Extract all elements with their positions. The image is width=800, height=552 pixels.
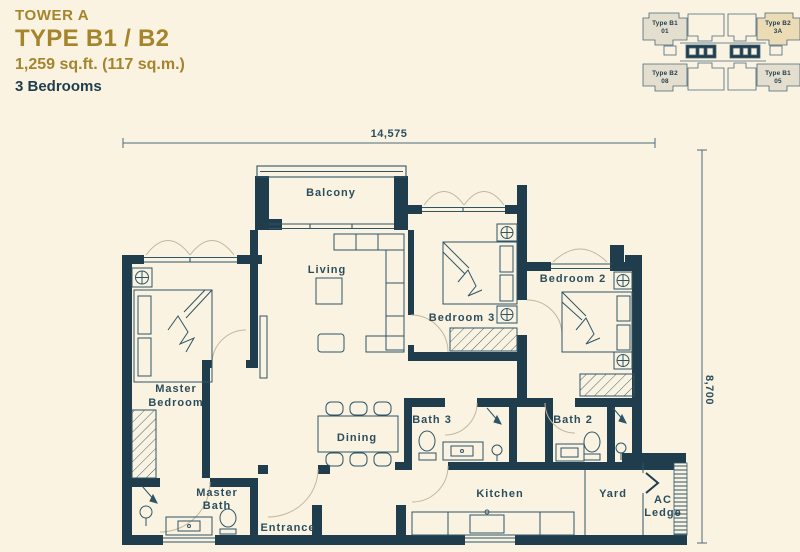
room-label-living: Living <box>308 264 346 276</box>
kitchen-door <box>412 466 448 502</box>
key-label-tr-1: Type B2 <box>765 20 791 27</box>
key-unit-bottom-mid-2 <box>728 63 756 90</box>
master-bedroom-door <box>212 330 246 364</box>
room-label-bath3: Bath 3 <box>412 414 452 426</box>
master-bed <box>134 290 212 382</box>
kitchen-counter <box>412 510 574 535</box>
windows <box>144 166 612 269</box>
coffee-table <box>316 278 342 304</box>
key-label-tr-2: 3A <box>774 28 783 35</box>
bedroom3-wardrobe <box>450 328 517 351</box>
room-label-master-bath-2: Bath <box>203 500 231 512</box>
armchair <box>318 334 344 352</box>
room-label-bedroom2: Bedroom 2 <box>540 273 606 285</box>
room-label-kitchen: Kitchen <box>476 488 523 500</box>
floor-plan-drawing: 14,575 8,700 Balcony Living Master Bedro… <box>0 0 800 552</box>
master-wardrobe <box>132 410 156 478</box>
key-plan: Type B1 01 Type B2 3A Type B2 08 Type B1… <box>643 13 800 91</box>
key-label-bl-2: 08 <box>661 78 669 85</box>
tv-console <box>260 316 267 378</box>
room-label-balcony: Balcony <box>306 187 356 199</box>
room-label-master-bedroom-1: Master <box>155 383 196 395</box>
key-unit-top-mid-2 <box>728 14 756 41</box>
key-label-tl-1: Type B1 <box>652 20 678 27</box>
room-label-bedroom3: Bedroom 3 <box>429 312 495 324</box>
key-unit-bottom-mid-1 <box>688 63 724 90</box>
key-label-br-2: 05 <box>774 78 782 85</box>
room-label-ac-ledge-2: Ledge <box>644 507 681 519</box>
dimension-width-label: 14,575 <box>371 128 408 140</box>
ac-louvre-door <box>646 473 658 493</box>
floor-plan-page: TOWER A TYPE B1 / B2 1,259 sq.ft. (117 s… <box>0 0 800 552</box>
room-label-ac-ledge-1: AC <box>654 494 672 506</box>
entrance-door <box>268 469 318 517</box>
dimension-height-label: 8,700 <box>703 375 715 405</box>
key-plan-core <box>664 45 782 58</box>
room-label-bath2: Bath 2 <box>553 414 593 426</box>
ac-ledge-grille <box>674 463 687 535</box>
key-label-bl-1: Type B2 <box>652 70 678 77</box>
bedroom3-bed <box>443 242 517 304</box>
master-side-table <box>132 268 152 287</box>
room-label-dining: Dining <box>337 432 377 444</box>
bedroom2-bed <box>562 292 632 352</box>
key-label-br-1: Type B1 <box>765 70 791 77</box>
key-unit-top-mid-1 <box>688 14 724 41</box>
bedroom3-side-tables <box>497 224 517 323</box>
room-label-entrance: Entrance <box>260 522 315 534</box>
bedroom2-wardrobe <box>580 374 634 396</box>
key-label-tl-2: 01 <box>661 28 669 35</box>
living-sofa <box>334 234 404 352</box>
room-label-yard: Yard <box>599 488 627 500</box>
room-label-master-bedroom-2: Bedroom <box>148 397 203 409</box>
window-swing-arcs <box>146 192 607 263</box>
room-label-master-bath-1: Master <box>196 487 237 499</box>
bedroom2-door <box>527 300 562 335</box>
